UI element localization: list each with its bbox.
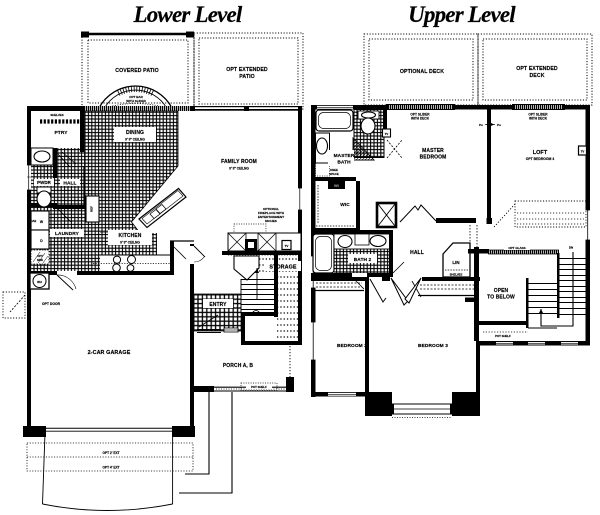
- svg-text:OPT 2′ EXT: OPT 2′ EXT: [102, 451, 119, 455]
- svg-text:WIC: WIC: [340, 202, 350, 208]
- svg-text:9′ 9″ CEILNG: 9′ 9″ CEILNG: [120, 241, 140, 245]
- svg-text:OPT 4′ EXT: OPT 4′ EXT: [102, 466, 119, 470]
- svg-text:BEDROOM 2: BEDROOM 2: [337, 343, 367, 349]
- svg-text:Po: Po: [479, 123, 483, 127]
- svg-text:Lower Level: Lower Level: [132, 2, 242, 27]
- svg-text:9′ 9″ CEILNG: 9′ 9″ CEILNG: [229, 167, 249, 171]
- svg-text:BATH 2: BATH 2: [354, 257, 372, 263]
- svg-text:LOFT: LOFT: [533, 150, 548, 156]
- svg-text:DINING: DINING: [126, 130, 144, 136]
- svg-text:BR: BR: [334, 184, 339, 188]
- svg-text:ENTRY: ENTRY: [209, 302, 227, 308]
- svg-text:Po: Po: [497, 123, 501, 127]
- svg-text:PWDR: PWDR: [37, 180, 52, 185]
- svg-text:OPT EXTENDED: OPT EXTENDED: [226, 67, 268, 73]
- svg-text:SHELVES: SHELVES: [50, 113, 63, 117]
- svg-text:TO BELOW: TO BELOW: [487, 295, 515, 301]
- svg-text:D: D: [40, 239, 43, 243]
- svg-text:LIN: LIN: [452, 260, 459, 265]
- svg-text:WITH DECK: WITH DECK: [411, 117, 430, 121]
- svg-text:MASTER: MASTER: [422, 148, 444, 154]
- svg-text:BEDROOM: BEDROOM: [420, 155, 447, 161]
- svg-text:FAMILY ROOM: FAMILY ROOM: [221, 159, 257, 165]
- svg-text:9′ 9″ CEILNG: 9′ 9″ CEILNG: [125, 138, 145, 142]
- svg-text:OPT EXTENDED: OPT EXTENDED: [516, 66, 558, 72]
- svg-text:HALL: HALL: [410, 250, 424, 256]
- svg-text:MASTER: MASTER: [334, 153, 355, 159]
- svg-text:HALL: HALL: [63, 181, 76, 187]
- svg-text:POT SHELF: POT SHELF: [251, 385, 267, 389]
- svg-text:COVERED PATIO: COVERED PATIO: [115, 68, 158, 74]
- svg-text:PTRY: PTRY: [54, 130, 68, 136]
- svg-text:TV: TV: [285, 244, 289, 248]
- svg-text:BEDROOM 3: BEDROOM 3: [418, 343, 448, 349]
- svg-text:OPT BEDROOM 4: OPT BEDROOM 4: [526, 157, 555, 161]
- svg-text:OPT DOOR: OPT DOOR: [42, 302, 61, 306]
- svg-text:POT SHELF: POT SHELF: [495, 334, 511, 338]
- svg-text:SINK: SINK: [37, 258, 43, 262]
- svg-text:LAUNDRY: LAUNDRY: [55, 231, 80, 237]
- svg-text:KITCHEN: KITCHEN: [119, 233, 142, 239]
- svg-text:WITH DECK: WITH DECK: [529, 117, 548, 121]
- svg-text:PATIO: PATIO: [239, 74, 255, 80]
- svg-text:2-CAR GARAGE: 2-CAR GARAGE: [88, 350, 131, 356]
- svg-text:TV: TV: [385, 132, 389, 136]
- svg-text:SPACE: SPACE: [329, 172, 339, 176]
- svg-text:DN: DN: [569, 246, 573, 250]
- svg-text:DECK: DECK: [529, 73, 544, 79]
- svg-text:TV: TV: [581, 150, 585, 154]
- svg-text:PORCH A, B: PORCH A, B: [223, 363, 254, 369]
- svg-text:NICHES: NICHES: [265, 219, 277, 223]
- svg-text:OPTIONAL DECK: OPTIONAL DECK: [400, 69, 444, 75]
- svg-text:SHELVES: SHELVES: [450, 273, 463, 277]
- svg-text:Upper Level: Upper Level: [408, 2, 516, 27]
- svg-text:OPT: OPT: [37, 254, 43, 258]
- svg-text:OPEN: OPEN: [494, 288, 509, 294]
- svg-text:WITH SLIDER: WITH SLIDER: [126, 99, 146, 103]
- svg-text:BATH: BATH: [337, 160, 351, 166]
- svg-text:OPT GLASS: OPT GLASS: [508, 246, 525, 250]
- svg-text:CAB: CAB: [31, 219, 37, 223]
- svg-text:WH: WH: [37, 280, 42, 284]
- svg-text:STORAGE: STORAGE: [269, 265, 297, 271]
- svg-text:REF: REF: [90, 206, 94, 212]
